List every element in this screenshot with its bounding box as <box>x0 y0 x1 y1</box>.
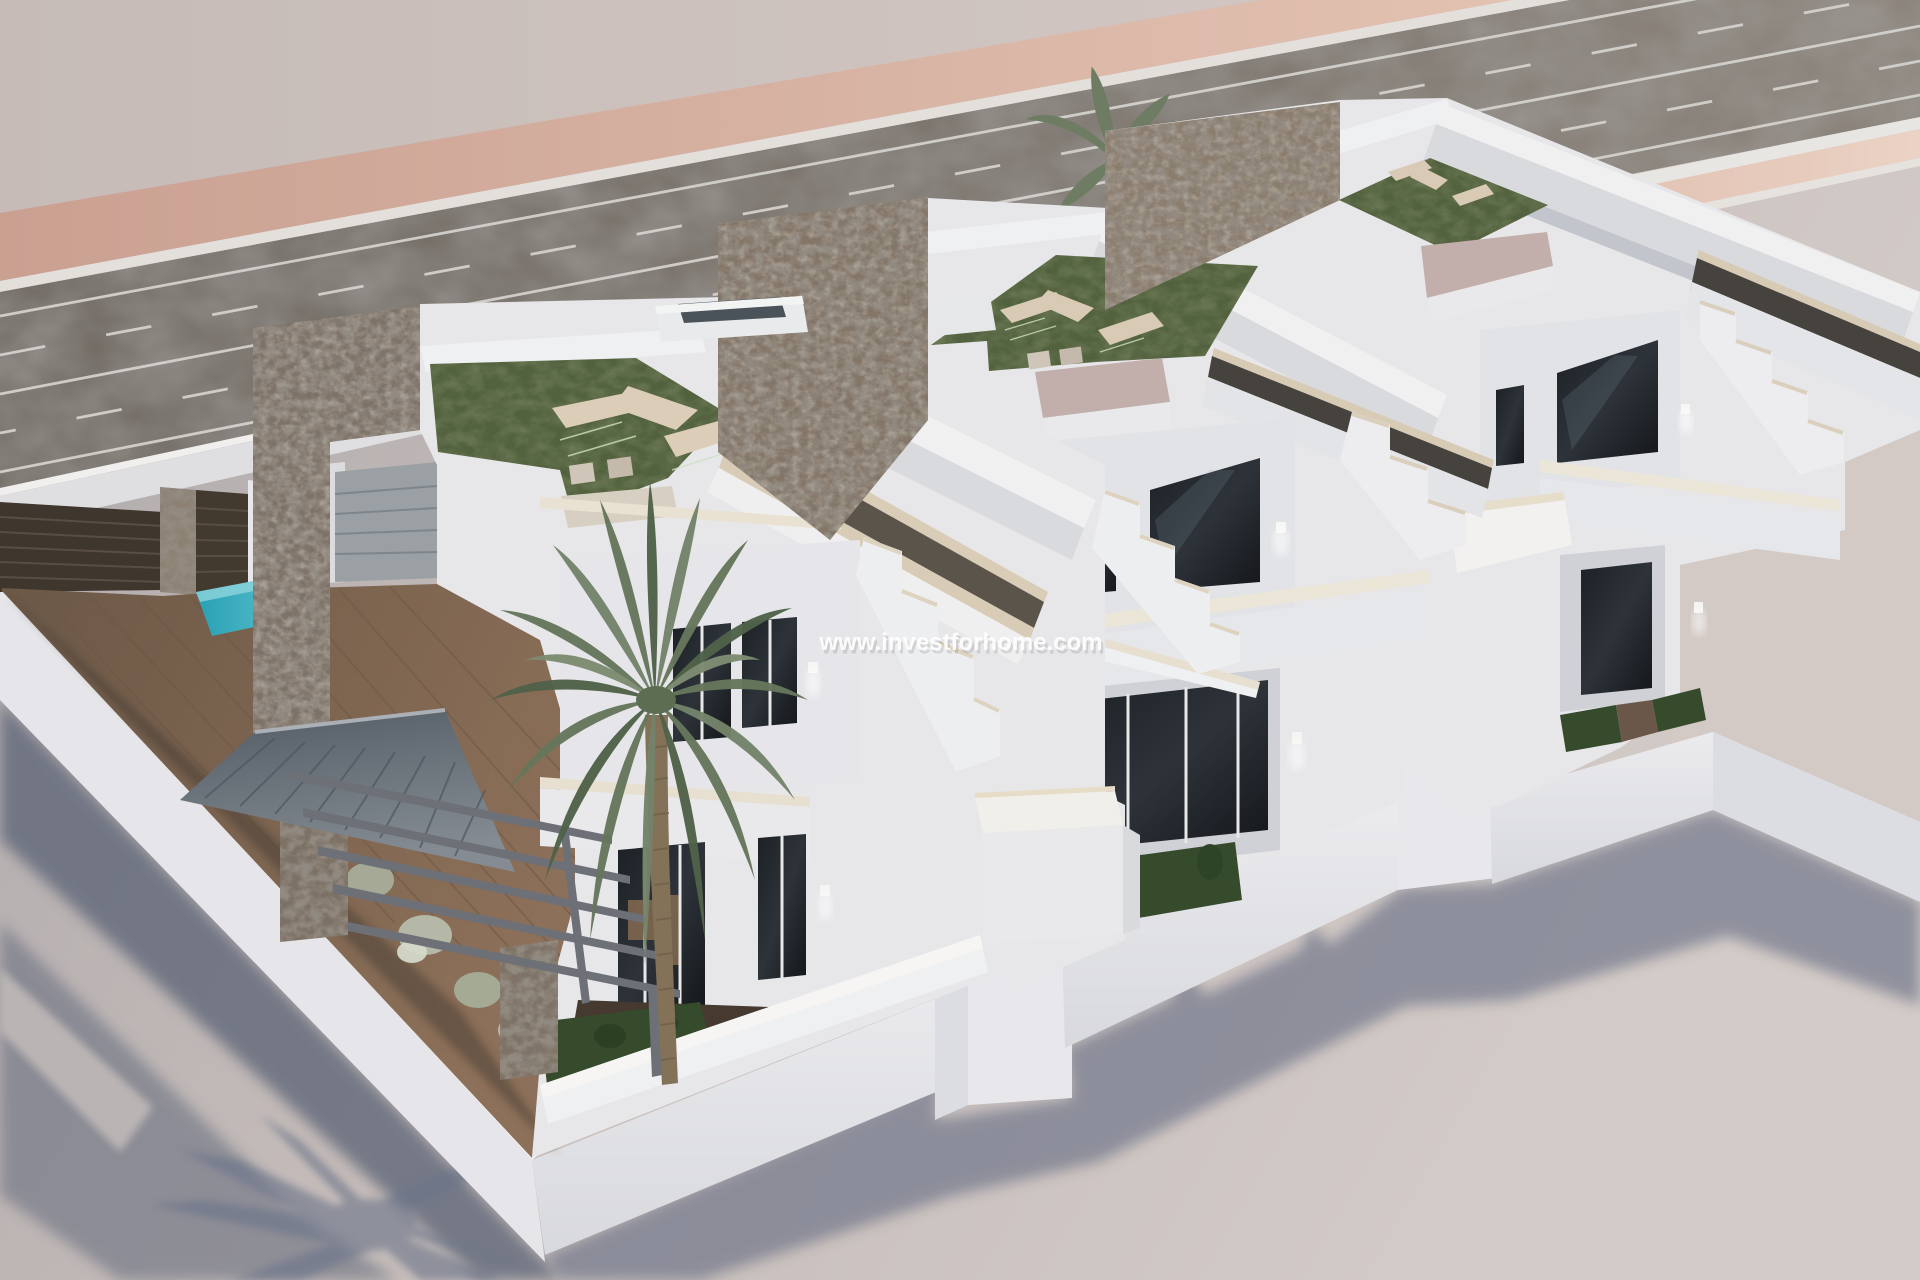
svg-text:www.investforhome.com: www.investforhome.com <box>818 629 1102 656</box>
